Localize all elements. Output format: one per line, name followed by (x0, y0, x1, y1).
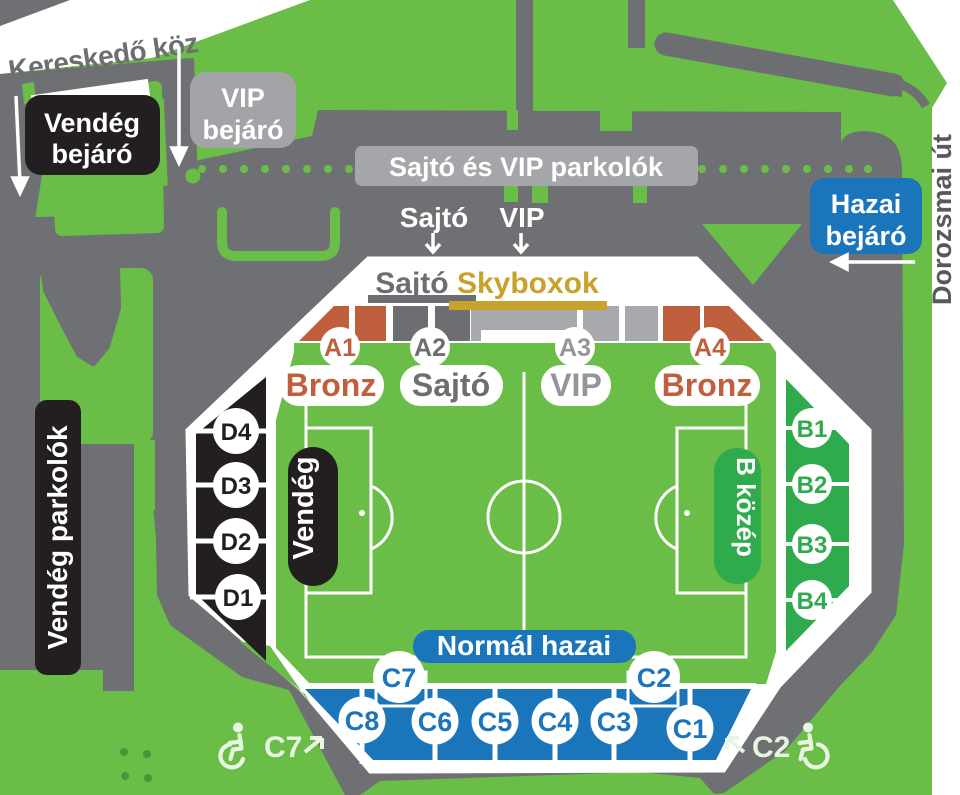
svg-text:D1: D1 (223, 585, 254, 612)
svg-text:Sajtó: Sajtó (412, 367, 490, 403)
svg-text:Sajtó Skyboxok: Sajtó Skyboxok (375, 267, 599, 300)
svg-text:C2: C2 (637, 663, 672, 693)
svg-text:bejáró: bejáró (51, 139, 132, 169)
svg-text:C1: C1 (673, 714, 708, 744)
svg-text:Hazai: Hazai (831, 189, 902, 219)
svg-text:Sajtó és VIP parkolók: Sajtó és VIP parkolók (389, 152, 664, 182)
svg-text:B3: B3 (797, 532, 828, 559)
svg-text:VIP: VIP (499, 202, 544, 233)
svg-text:Normál hazai: Normál hazai (437, 630, 611, 661)
svg-text:Bronz: Bronz (286, 367, 377, 403)
svg-text:Dorozsmai út: Dorozsmai út (927, 134, 957, 305)
svg-text:D3: D3 (221, 473, 252, 500)
svg-text:C6: C6 (418, 707, 453, 737)
svg-text:Bronz: Bronz (662, 367, 753, 403)
svg-text:VIP: VIP (550, 367, 602, 403)
svg-text:C8: C8 (345, 706, 380, 736)
svg-text:bejáró: bejáró (202, 115, 283, 145)
svg-text:C5: C5 (478, 707, 513, 737)
svg-text:D2: D2 (221, 529, 252, 556)
svg-text:Sajtó: Sajtó (400, 202, 468, 233)
svg-text:D4: D4 (221, 419, 252, 446)
svg-text:Vendég: Vendég (288, 456, 320, 559)
svg-text:C7: C7 (382, 663, 417, 693)
svg-text:B közép: B közép (731, 457, 761, 557)
svg-text:Vendég parkolók: Vendég parkolók (42, 425, 73, 649)
svg-text:B1: B1 (797, 416, 828, 443)
svg-text:C4: C4 (538, 707, 573, 737)
svg-text:Vendég: Vendég (44, 108, 140, 138)
svg-text:A2: A2 (414, 334, 446, 362)
svg-text:B4: B4 (797, 588, 828, 615)
svg-text:bejáró: bejáró (825, 221, 906, 251)
svg-text:B2: B2 (797, 472, 828, 499)
svg-text:A1: A1 (324, 334, 356, 362)
svg-text:VIP: VIP (221, 83, 265, 113)
svg-text:C3: C3 (597, 707, 632, 737)
svg-text:C2: C2 (752, 731, 790, 764)
svg-text:A3: A3 (559, 334, 591, 362)
svg-text:A4: A4 (694, 334, 726, 362)
svg-text:C7: C7 (264, 731, 302, 764)
